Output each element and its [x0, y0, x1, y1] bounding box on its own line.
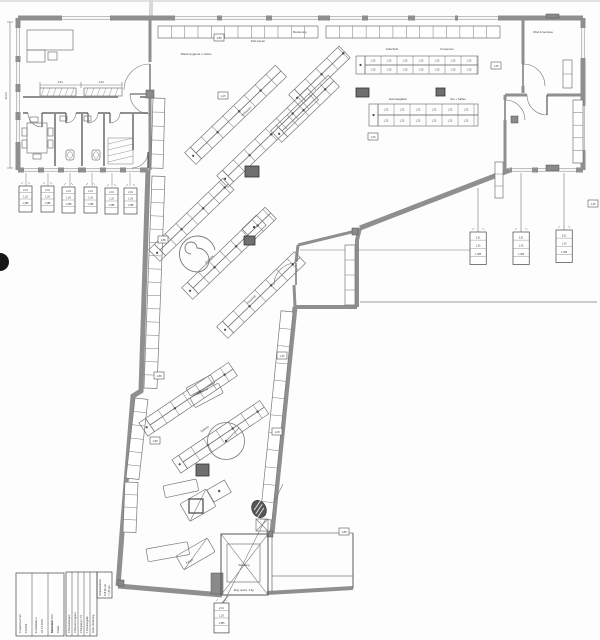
shelf-number: 1,25 — [371, 60, 376, 63]
title-block — [16, 572, 112, 636]
shelf-number: 1,25 — [451, 69, 456, 72]
title-field-value: 22.07.2015 — [40, 619, 44, 633]
window — [330, 15, 362, 21]
office-counter — [40, 88, 76, 96]
hatch-line — [85, 88, 88, 96]
shelf-number: 1,25 — [435, 69, 440, 72]
hatch-line — [53, 88, 56, 96]
plan-label: Tee + Kaffee — [450, 97, 466, 101]
window-tag-text: 2,01 — [109, 191, 114, 194]
shelf-number: 1,25 — [419, 69, 424, 72]
title-legend-row: 2 Eingang lt. PL — [79, 614, 83, 633]
window-tag-tick — [568, 226, 570, 228]
gondola-dot — [359, 64, 361, 66]
chair — [30, 117, 38, 122]
window-tag-tick — [472, 228, 474, 230]
shelf-number: 1,25 — [416, 109, 421, 112]
plan-label: Gemüsegläser — [389, 97, 407, 101]
window-tag-text: 1,26 — [23, 196, 28, 199]
plan-label: Drogerie — [204, 254, 215, 265]
display-unit — [207, 480, 231, 502]
pillar-block — [118, 580, 124, 586]
gondola-dot — [145, 426, 148, 429]
shelf-number: 1,25 — [467, 60, 472, 63]
plan-label: Windfang — [239, 563, 251, 567]
gondola-dot — [278, 132, 281, 135]
shelf-number: 1,25 — [387, 60, 392, 63]
hatch-line — [71, 88, 74, 96]
gondola-dot — [192, 154, 195, 157]
window-tag-text: 2,01 — [476, 237, 481, 240]
dim-tag-text: 1,88 — [156, 374, 162, 378]
shelf-divider — [158, 410, 167, 423]
window-tag-text: 1,385 — [109, 204, 116, 207]
chair — [22, 140, 27, 148]
plan-label: 1,64 — [98, 80, 104, 84]
window-tag-tick — [114, 184, 116, 186]
shelf-number: 1,25 — [435, 60, 440, 63]
shelf-number: 1,25 — [400, 120, 405, 123]
window-tag-text: 1,385 — [561, 251, 568, 254]
shelf-number: 1,25 — [387, 69, 392, 72]
window-tag-tick — [126, 184, 128, 186]
window — [44, 167, 58, 173]
door-tag-tick — [216, 599, 218, 601]
door-swing-arc — [124, 64, 150, 90]
door-swing-arc — [110, 113, 120, 123]
spiral-display — [179, 236, 215, 272]
toilet — [66, 150, 74, 160]
office-furniture — [48, 52, 57, 60]
pillar-block — [546, 165, 559, 171]
window-tag-tick — [86, 183, 88, 185]
window — [15, 28, 21, 56]
plan-label: Wand Hygiene u. Deko — [181, 52, 212, 56]
window-tag-tick — [43, 182, 45, 184]
dim-tag-text: 1,88 — [160, 238, 166, 242]
hatch-line — [65, 88, 68, 96]
shelf-number: 1,25 — [448, 109, 453, 112]
window-tag-text: 1,385 — [475, 253, 482, 256]
window-tag-text: 2,01 — [23, 189, 28, 192]
shelf-divider — [241, 413, 250, 426]
wall — [357, 228, 360, 307]
hatch-line — [41, 88, 44, 96]
hatch-line — [103, 88, 106, 96]
shelf-number: 1,25 — [432, 109, 437, 112]
shelf-number: 1,25 — [464, 109, 469, 112]
door-swing-arc — [527, 95, 547, 115]
counter-pedestal — [189, 499, 203, 513]
window-tag-text: 1,385 — [66, 203, 73, 206]
window-tag-text: 1,385 — [45, 202, 52, 205]
wall — [360, 170, 510, 228]
window — [580, 28, 586, 58]
gondola-diagonal — [185, 65, 287, 164]
hatch-line — [91, 88, 94, 96]
window — [62, 15, 110, 21]
window — [15, 62, 21, 84]
window-tag-tick — [525, 228, 527, 230]
window — [86, 167, 100, 173]
shelf-number: 1,25 — [464, 120, 469, 123]
gondola-diagonal — [289, 46, 350, 106]
wall-shelf-run — [495, 162, 503, 198]
wall-shelf-run — [151, 98, 165, 168]
hatch-line — [109, 88, 112, 96]
pillar-block — [511, 116, 518, 123]
shelf-number: 1,25 — [400, 109, 405, 112]
leader-line — [222, 596, 228, 603]
scanned-floor-plan-page: Einrichtungsplan (Scan) 1,251,251,251,25… — [0, 0, 600, 640]
window-tag-text: 1,26 — [562, 243, 567, 246]
window — [512, 167, 532, 173]
window-tag-text: 1,26 — [45, 196, 50, 199]
plan-label: 1,64 — [57, 80, 63, 84]
title-legend-row: 4 Bemerkungen — [67, 614, 71, 633]
door-swing-arc — [523, 64, 545, 86]
gondola-row — [160, 184, 234, 256]
chair — [22, 128, 27, 136]
dim-tag-text: 1,88 — [216, 36, 222, 40]
shelf-divider — [191, 447, 200, 460]
title-field-value: Filiale — [56, 625, 60, 633]
sales-area-value: 77,45 qm — [107, 585, 111, 596]
pillar-block — [146, 90, 154, 98]
window — [368, 15, 408, 21]
office-furniture — [27, 30, 73, 50]
promo-pallet — [244, 236, 255, 245]
window-tag-text: 1,26 — [109, 198, 114, 201]
door-swing-arc — [88, 113, 98, 123]
dim-tag-text: 1,25 — [493, 64, 499, 68]
dim-tag-text: 1,25 — [220, 94, 226, 98]
hatch-line — [97, 88, 100, 96]
window-tag-tick — [482, 228, 484, 230]
promo-pallet — [436, 88, 445, 96]
window-tag-text: 1,385 — [88, 203, 95, 206]
shelf-number: 1,25 — [432, 120, 437, 123]
shelf-number: 1,25 — [451, 60, 456, 63]
counter-box — [163, 479, 199, 498]
shelf-number: 1,25 — [384, 120, 389, 123]
plan-label: Backshop — [196, 386, 209, 396]
window-tag-text: 1,26 — [66, 197, 71, 200]
door-tag-text: 1,385 — [218, 622, 225, 625]
gondola-dot — [224, 328, 227, 331]
wall-shelf-run — [326, 26, 500, 38]
toilet — [92, 150, 100, 160]
plan-label: Obst & Gemüse — [533, 30, 553, 34]
window-tag-text: 1,26 — [476, 245, 481, 248]
window — [15, 120, 21, 142]
door-swing-arc — [66, 113, 76, 123]
title-legend-row: 1 Erstausgabe — [85, 616, 89, 633]
shelf-number: 1,25 — [448, 120, 453, 123]
window — [24, 167, 38, 173]
wall — [118, 586, 222, 595]
hatch-line — [47, 88, 50, 96]
plan-label: Duft-Center — [251, 39, 266, 43]
hatch-line — [115, 88, 118, 96]
office-furniture — [27, 123, 47, 153]
window-tag-tick — [28, 182, 30, 184]
window-tag-text: 2,01 — [128, 191, 133, 194]
shower-hatch — [108, 144, 133, 150]
window-tag-tick — [93, 183, 95, 185]
toilet-bowl — [94, 152, 99, 158]
counter — [163, 479, 199, 498]
chair — [48, 140, 53, 148]
dim-tag-text: 1,25 — [590, 202, 596, 206]
sales-area-label: Verkaufsfläche — [98, 578, 102, 596]
window — [458, 15, 498, 21]
dim-tag-text: 1,25 — [274, 430, 280, 434]
title-field-label: Erstelldatum — [34, 617, 38, 633]
title-field-label: Planinhalt — [50, 620, 54, 633]
gondola-dot — [189, 289, 192, 292]
chair — [48, 128, 53, 136]
dim-tag-text: 1,25 — [370, 135, 376, 139]
title-field-label: Projektnummer — [18, 614, 22, 633]
window-tag-tick — [50, 182, 52, 184]
window-tag-text: 2,01 — [88, 190, 93, 193]
gondola-row — [276, 75, 333, 131]
window-tag-text: 1,385 — [23, 202, 30, 205]
window — [272, 15, 318, 21]
window-tag-text: 1,26 — [128, 198, 133, 201]
window-tag-text: 2,01 — [45, 189, 50, 192]
window — [415, 15, 455, 21]
plan-label: Tiefkühl — [199, 425, 210, 434]
wall — [294, 285, 295, 307]
gondola-row — [187, 207, 270, 288]
plan-label: Aufschnitt — [386, 47, 399, 51]
window-tag-tick — [21, 182, 23, 184]
shelf-number: 1,25 — [419, 60, 424, 63]
shelf-number: 1,25 — [384, 109, 389, 112]
shelf-number: 1,25 — [371, 69, 376, 72]
pillar-block — [352, 228, 358, 235]
plan-label: Haushalt — [246, 294, 257, 305]
gondola-diagonal — [172, 401, 269, 474]
display-unit-dot — [218, 489, 221, 492]
gondola-dot — [178, 463, 181, 466]
wall — [298, 230, 360, 245]
door-swing-arc — [132, 152, 148, 168]
toilet-bowl — [68, 152, 73, 158]
display-unit — [242, 215, 266, 239]
window-tag-text: 1,385 — [128, 204, 135, 207]
wall — [267, 588, 353, 593]
window-tag-text: 1,385 — [518, 253, 525, 256]
shower-hatch — [108, 156, 133, 162]
gondola-row — [282, 81, 339, 137]
window-tag-tick — [515, 228, 517, 230]
plan-label: Kasse — [185, 557, 194, 564]
plan-label: 16,64 — [4, 92, 8, 99]
round-rack-center — [225, 440, 227, 442]
window-tag-tick — [107, 184, 109, 186]
shower-hatch — [108, 138, 133, 144]
window-tag-text: 2,01 — [562, 235, 567, 238]
dim-tag-text: 1,25 — [279, 354, 285, 358]
plan-label: Konserven — [440, 47, 454, 51]
title-field-value: 126152 — [24, 623, 28, 633]
window-tag-text: 2,01 — [66, 190, 71, 193]
dim-tag-text: 1,88 — [152, 439, 158, 443]
window — [15, 92, 21, 112]
gondola-diagonal — [271, 75, 340, 142]
title-legend-row: 3 Bestand ergänzt — [73, 612, 77, 633]
shelf-number: 1,25 — [403, 60, 408, 63]
plan-label: Bedienung — [293, 30, 307, 34]
hatch-line — [59, 88, 62, 96]
office-furniture — [27, 50, 45, 62]
plan-label: Eing. autom. 2-flg. — [234, 589, 255, 592]
title-legend-row: Index Änderung — [91, 614, 95, 633]
door-tag-text: 1,26 — [219, 614, 224, 617]
window-tag-tick — [133, 184, 135, 186]
window — [175, 15, 217, 21]
door-tag-text: 2,01 — [219, 607, 224, 610]
wall-shelf-run — [573, 100, 583, 163]
window-tag-tick — [71, 183, 73, 185]
shelf-number: 1,25 — [403, 69, 408, 72]
window-tag-tick — [64, 183, 66, 185]
shower-hatch — [108, 150, 133, 156]
window-tag-tick — [558, 226, 560, 228]
pillar-block — [546, 14, 559, 18]
sales-area-value: 118,36 qm — [103, 584, 107, 596]
dim-tag-text: 1,88 — [341, 530, 347, 534]
shelf-divider — [216, 430, 225, 443]
window — [558, 167, 576, 173]
promo-pallet — [196, 464, 209, 476]
floor-plan-drawing: 1,251,251,251,251,251,251,251,251,251,25… — [0, 0, 600, 640]
gondola-dot — [372, 114, 374, 116]
window — [106, 167, 120, 173]
window-tag-text: 1,26 — [88, 197, 93, 200]
promo-pallet — [356, 88, 369, 97]
window — [64, 167, 78, 173]
gondola-row — [179, 401, 265, 462]
window-tag-text: 1,26 — [519, 245, 524, 248]
promo-pallet — [245, 166, 259, 177]
shelf-number: 1,25 — [416, 120, 421, 123]
door-swing-arc — [274, 263, 296, 285]
chair — [33, 154, 41, 159]
shelf-number: 1,25 — [467, 69, 472, 72]
window — [222, 15, 266, 21]
window-tag-text: 2,01 — [519, 237, 524, 240]
